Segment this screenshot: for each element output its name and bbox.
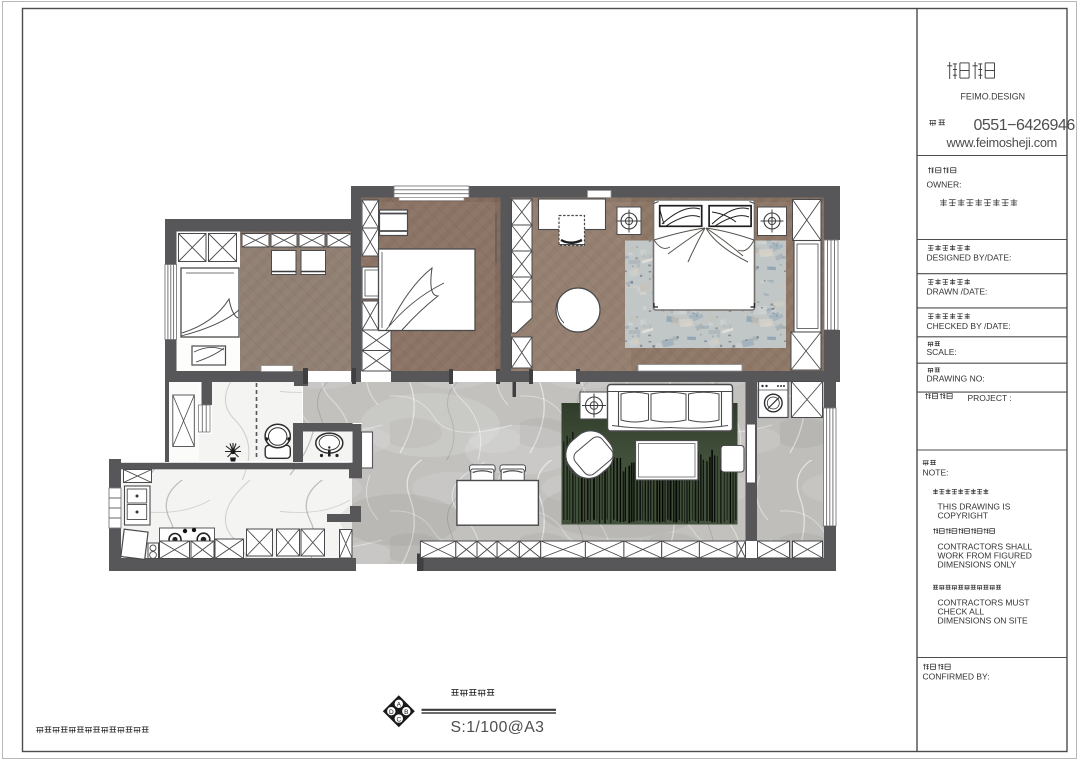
svg-text:S:1/100@A3: S:1/100@A3 xyxy=(451,719,545,736)
svg-text:DIMENSIONS ONLY: DIMENSIONS ONLY xyxy=(938,560,1017,570)
svg-text:SCALE:: SCALE: xyxy=(927,347,957,357)
svg-text:B: B xyxy=(404,709,408,716)
svg-text:PROJECT :: PROJECT : xyxy=(968,393,1012,403)
svg-text:DRAWING NO:: DRAWING NO: xyxy=(927,374,985,384)
svg-text:COPYRIGHT: COPYRIGHT xyxy=(938,511,989,521)
svg-text:NOTE:: NOTE: xyxy=(923,468,949,478)
svg-text:DRAWN /DATE:: DRAWN /DATE: xyxy=(927,287,988,297)
svg-text:CONFIRMED BY:: CONFIRMED BY: xyxy=(923,672,990,682)
svg-text:www.feimosheji.com: www.feimosheji.com xyxy=(946,135,1058,150)
svg-text:FEIMO.DESIGN: FEIMO.DESIGN xyxy=(961,92,1026,102)
svg-text:OWNER:: OWNER: xyxy=(927,180,962,190)
svg-text:DIMENSIONS ON SITE: DIMENSIONS ON SITE xyxy=(938,616,1029,626)
svg-text:0551−6426946: 0551−6426946 xyxy=(974,117,1076,134)
svg-text:C: C xyxy=(396,716,401,723)
svg-text:DESIGNED BY/DATE:: DESIGNED BY/DATE: xyxy=(927,253,1012,263)
svg-text:D: D xyxy=(389,709,394,716)
svg-text:A: A xyxy=(397,702,402,709)
svg-text:CHECKED BY /DATE:: CHECKED BY /DATE: xyxy=(927,321,1011,331)
